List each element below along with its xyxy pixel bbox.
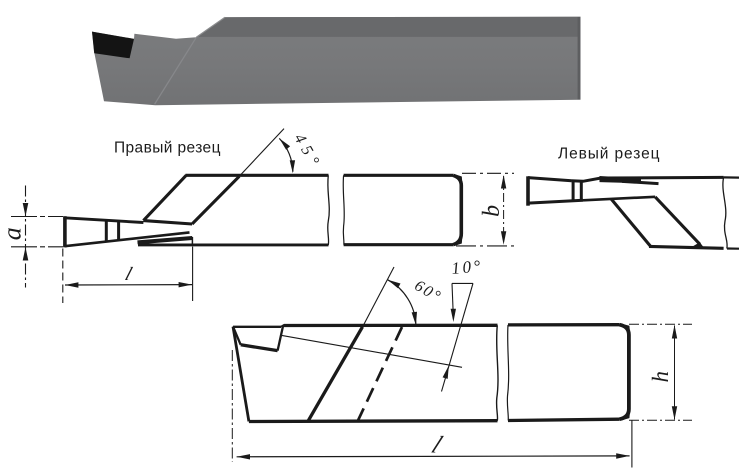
svg-text:b: b <box>479 205 505 217</box>
svg-text:Правый резец: Правый резец <box>114 140 221 157</box>
svg-text:h: h <box>648 371 673 383</box>
svg-text:a: a <box>0 227 27 240</box>
svg-text:Левый резец: Левый резец <box>558 146 660 163</box>
svg-text:10°: 10° <box>451 256 484 278</box>
